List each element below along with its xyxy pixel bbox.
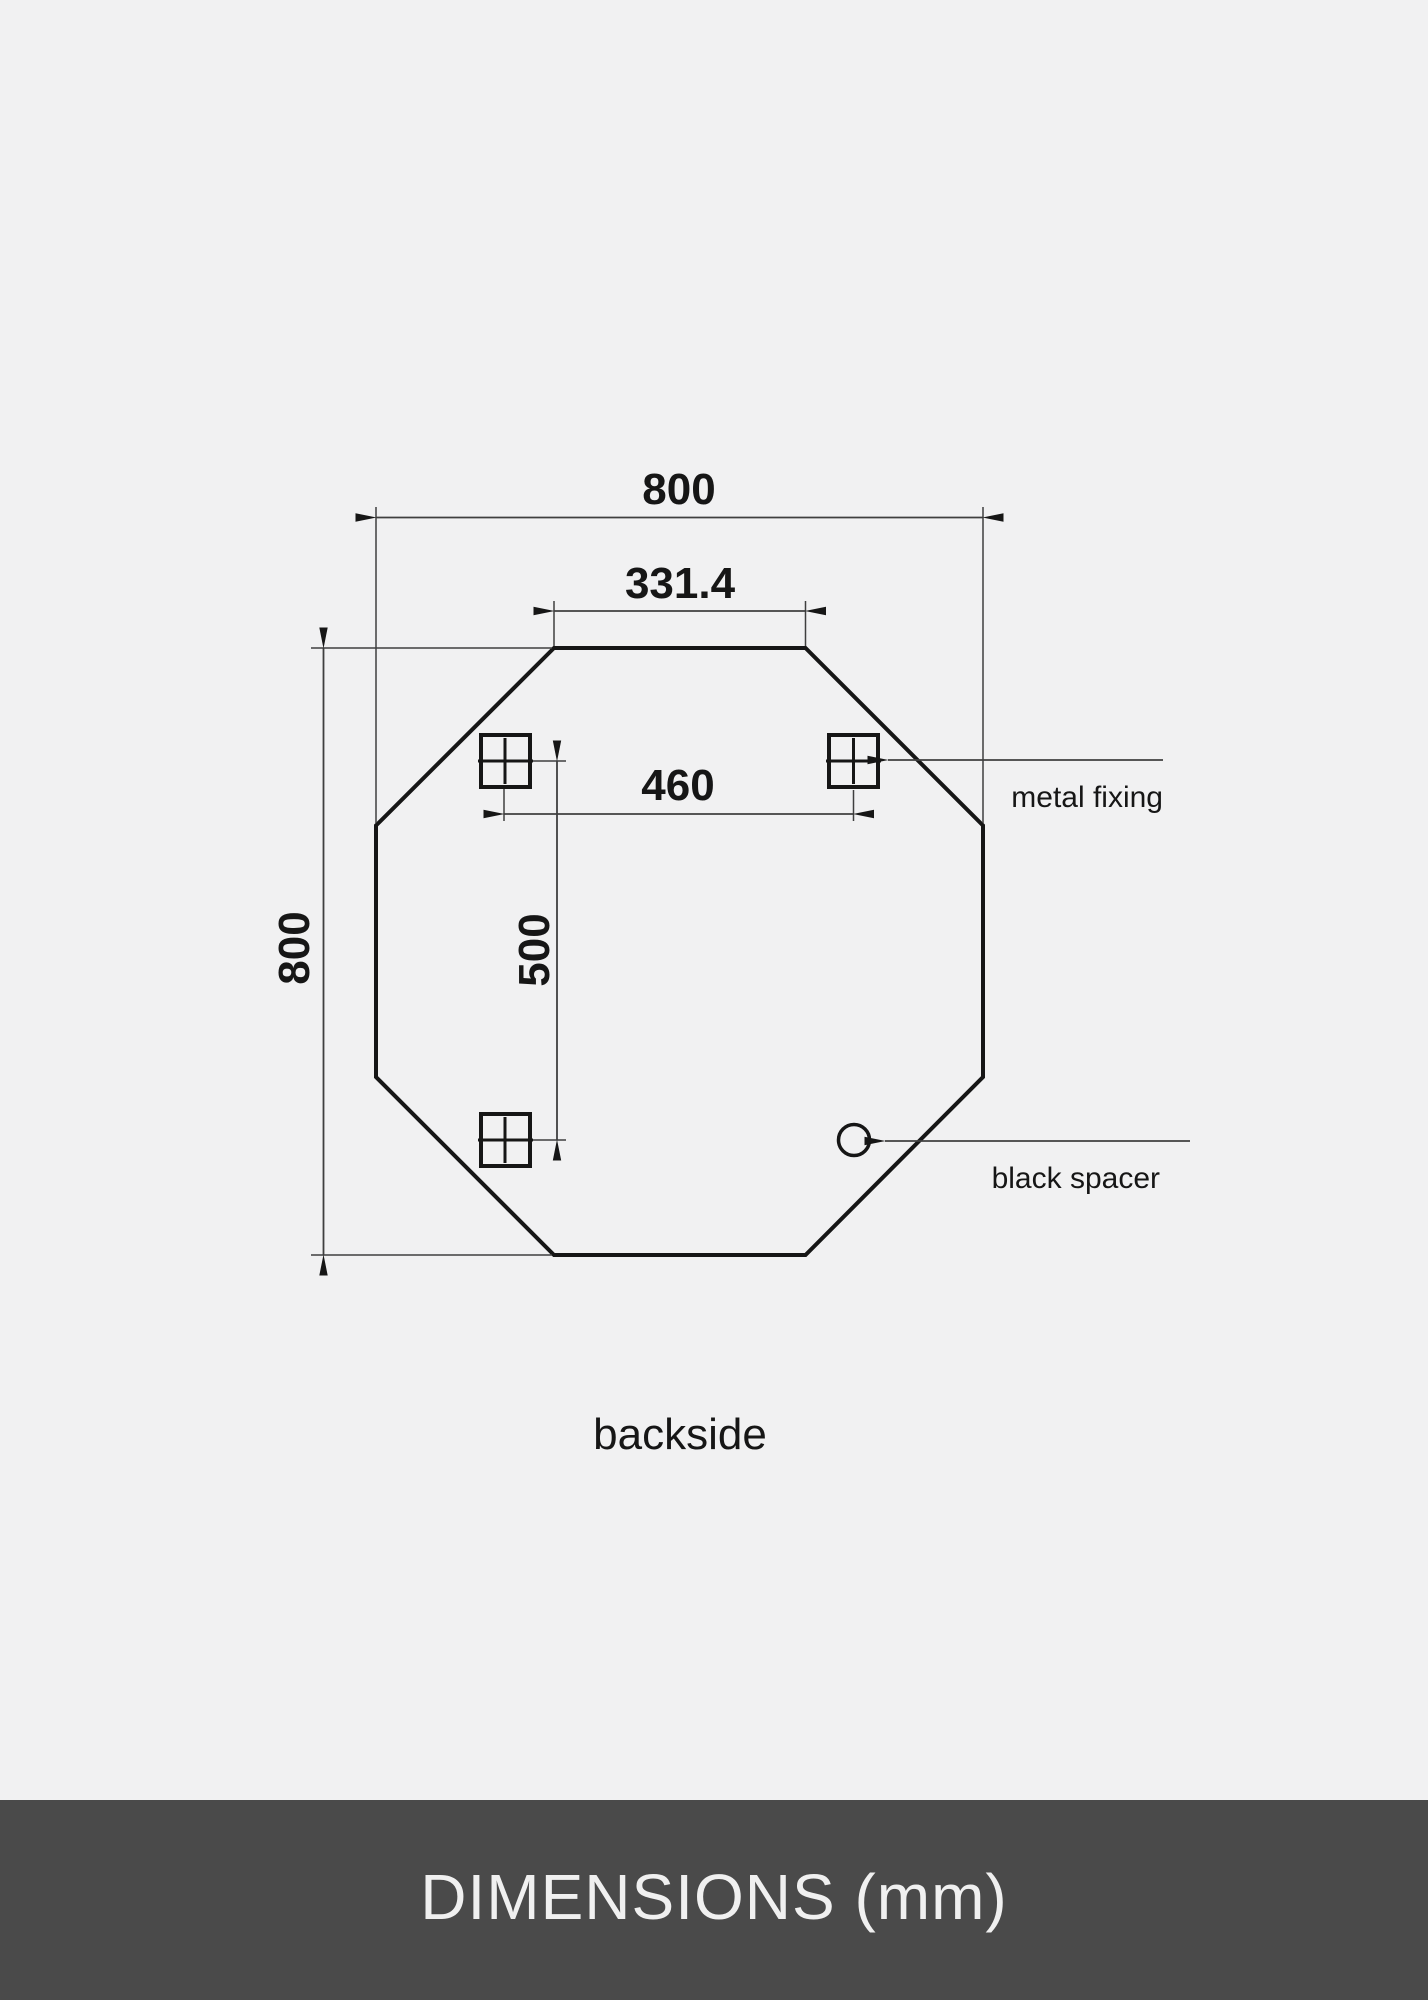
dim-label-overall-height: 800 [270, 911, 319, 984]
footer-title: DIMENSIONS (mm) [420, 1861, 1007, 1933]
metal-fixing-label: metal fixing [1011, 781, 1163, 814]
dim-label-fixing-vertical: 500 [510, 913, 559, 986]
dim-label-overall-width: 800 [642, 465, 715, 514]
black-spacer-label: black spacer [992, 1162, 1160, 1195]
page-background [0, 0, 1428, 2000]
footer-bar: DIMENSIONS (mm) [0, 1800, 1428, 2000]
dim-label-fixing-horizontal: 460 [641, 761, 714, 810]
dimension-sheet: 800 331.4 800 460 500 [0, 0, 1428, 2000]
dim-label-top-edge: 331.4 [625, 559, 736, 608]
view-caption: backside [593, 1410, 767, 1459]
